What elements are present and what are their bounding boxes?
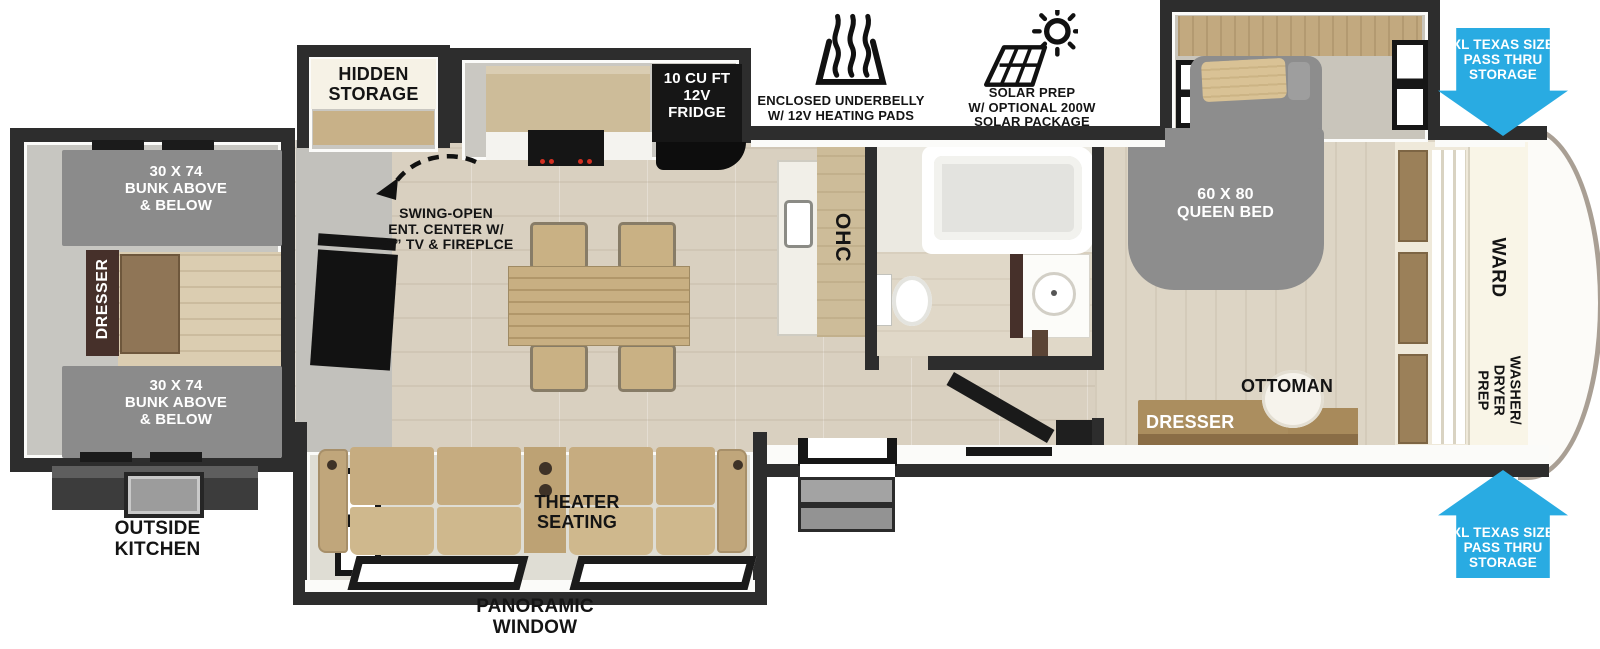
closet-door [1398,252,1428,344]
dining-chair [618,344,676,392]
kitchen-counter [486,66,650,132]
entry-step [798,505,895,532]
stove-knob [540,159,545,164]
hidden-storage-label-box: HIDDEN STORAGE [311,59,436,109]
bunk-window-icon [80,452,132,462]
underbelly-label: ENCLOSED UNDERBELLY W/ 12V HEATING PADS [756,94,926,123]
entry-door-opening [808,438,887,458]
stove-knob [578,159,583,164]
bunk-bottom-label: 30 X 74 BUNK ABOVE & BELOW [86,378,266,428]
ward-label: WARD [1487,213,1508,323]
panoramic-window-pane [569,556,756,590]
bunk-window-icon [150,452,202,462]
dining-chair [530,222,588,270]
stove-knob [549,159,554,164]
sofa-back-cushion [656,447,715,505]
pass-thru-arrow-down-icon: XL TEXAS SIZE PASS THRU STORAGE [1438,28,1568,136]
bed-bolster [1288,62,1310,100]
bedroom-partition-wall [1092,133,1104,370]
bedroom-window-icon [1392,40,1428,130]
pass-thru-bottom-label: XL TEXAS SIZE PASS THRU STORAGE [1438,525,1568,578]
swing-arrow-icon [372,148,482,210]
armrest-button-icon [733,460,743,470]
dining-chair [618,222,676,270]
outside-kitchen-label: OUTSIDE KITCHEN [80,518,235,561]
bathroom-wall-bottom-b [928,356,1104,370]
floorplan-canvas: HIDDEN STORAGE 10 CU FT 12V FRIDGE [0,0,1600,649]
heating-pads-icon [808,8,894,92]
closet-door [1398,150,1428,242]
panoramic-window-pane [347,556,528,590]
ottoman-label: OTTOMAN [1222,376,1352,396]
vanity-cabinet [1032,330,1048,356]
outside-kitchen-griddle [124,472,204,518]
fridge-label: 10 CU FT 12V FRIDGE [652,64,742,121]
stove-knob [587,159,592,164]
solar-label: SOLAR PREP W/ OPTIONAL 200W SOLAR PACKAG… [952,86,1112,130]
sofa-back-cushion [437,447,521,505]
hidden-storage-label: HIDDEN STORAGE [328,64,418,104]
dining-chair [530,344,588,392]
sink-faucet-icon [1051,290,1057,296]
top-wall-mid-inner [751,140,1165,147]
hidden-storage-shelf [313,111,434,145]
bunk-window-icon [162,140,214,150]
front-cap [1518,126,1600,480]
top-wall-right-inner [1435,140,1525,147]
armrest-button-icon [327,460,337,470]
entry-door-gap [800,464,895,477]
sofa-seat-cushion [656,507,715,555]
theater-slide-right-wall [753,432,767,605]
vanity-side-panel [1010,254,1023,338]
dining-table [508,266,690,346]
toilet-bowl [892,276,932,326]
pass-thru-arrow-up-icon: XL TEXAS SIZE PASS THRU STORAGE [1438,470,1568,578]
bed-pillow [1201,58,1287,102]
tv [310,249,398,370]
entry-window-slat-icon [966,447,1052,456]
bathtub-basin [934,156,1082,240]
bathroom-wall-bottom-a [865,356,879,370]
theater-seating-label: THEATER SEATING [512,492,642,532]
queen-bed-label: 60 X 80 QUEEN BED [1138,186,1313,222]
bathroom-wall-left [865,133,877,370]
bunk-window-icon [92,140,144,150]
sofa-seat-cushion [350,507,434,555]
sofa-back-cushion [350,447,434,505]
top-wall-right [1435,126,1547,140]
bunk-dresser-label: DRESSER [94,244,112,354]
kitchen-sink [784,200,813,248]
refrigerator-base [656,142,746,170]
solar-panel-icon [978,10,1078,90]
refrigerator: 10 CU FT 12V FRIDGE [652,64,742,142]
ohc-label: OHC [830,178,854,298]
swing-open-label: SWING-OPEN ENT. CENTER W/ 50” TV & FIREP… [366,206,526,253]
closet-shelf-slats [1432,150,1466,444]
kitchen-peninsula [777,160,819,336]
washer-dryer-label: WASHER/ DRYER PREP [1474,340,1523,440]
panoramic-window-label: PANORAMIC WINDOW [450,596,620,639]
pass-thru-top-label: XL TEXAS SIZE PASS THRU STORAGE [1438,28,1568,82]
entry-step [798,477,895,505]
sofa-seat-cushion [437,507,521,555]
closet-door [1398,354,1428,444]
headboard-shelf [1178,16,1422,56]
cupholder-icon [539,462,552,475]
bunk-dresser-cabinet [120,254,180,354]
theater-slide-left-wall [293,422,307,605]
bedroom-dresser-label: DRESSER [1146,412,1266,432]
bunk-top-label: 30 X 74 BUNK ABOVE & BELOW [86,164,266,214]
